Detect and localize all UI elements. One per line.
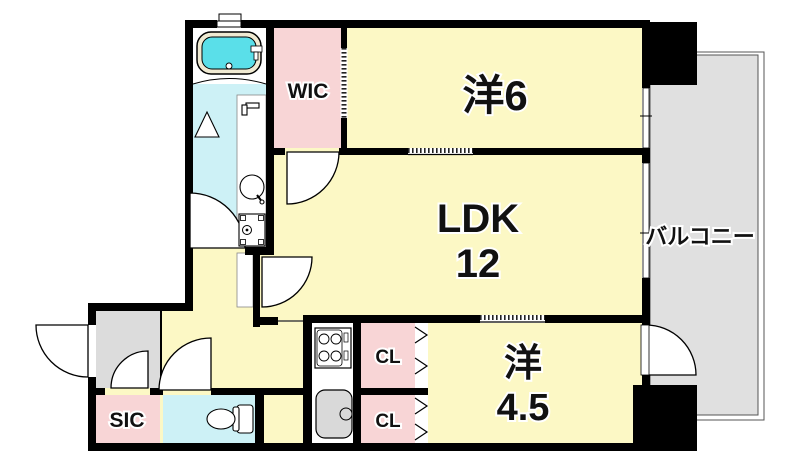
bath-partition <box>193 76 266 84</box>
sliding-partition-west6 <box>408 148 473 155</box>
washing-machine-icon <box>239 214 265 246</box>
gas-stove-icon <box>315 328 351 368</box>
floorplan-drawing: 洋6 LDK 12 洋 4.5 WIC SIC CL CL バルコニー <box>0 0 800 469</box>
closet-folding-doors <box>415 323 428 443</box>
balcony-door-leaf <box>641 325 649 375</box>
western6-window <box>643 88 649 148</box>
label-sic: SIC <box>109 409 144 432</box>
label-closet-lower: CL <box>375 411 401 432</box>
label-ldk-size: 12 <box>456 242 501 286</box>
column-bottom <box>633 385 697 451</box>
entrance-door-arc <box>36 325 88 377</box>
floorplan-canvas: 洋6 LDK 12 洋 4.5 WIC SIC CL CL バルコニー <box>0 0 800 469</box>
bathroom-window <box>217 21 241 27</box>
label-closet-upper: CL <box>375 347 401 368</box>
faucet-icon <box>246 103 259 108</box>
kitchen-sink-icon <box>316 390 352 438</box>
label-wic: WIC <box>288 80 329 103</box>
hall-niche <box>237 253 253 307</box>
ldk-window <box>643 163 649 278</box>
column-top <box>643 22 697 85</box>
bathtub-icon <box>197 32 262 74</box>
label-ldk: LDK <box>437 197 519 241</box>
label-western45-size: 4.5 <box>497 387 550 429</box>
label-balcony: バルコニー <box>645 224 755 249</box>
label-western45: 洋 <box>504 343 542 385</box>
sliding-partition-west45 <box>480 315 545 323</box>
label-western6: 洋6 <box>462 72 527 119</box>
